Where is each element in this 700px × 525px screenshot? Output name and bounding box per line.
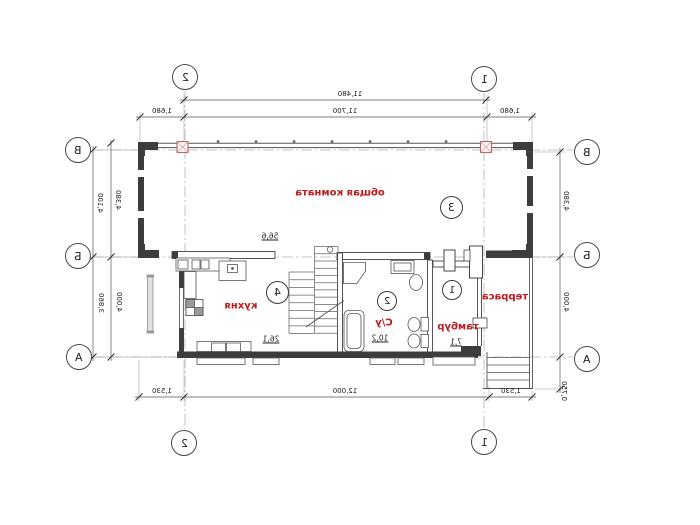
room-number-bathroom: 2 [377, 291, 397, 311]
terrace-outline [483, 258, 533, 389]
room-number-kitchen: 4 [266, 281, 289, 304]
room-label-terrace: терраса [482, 292, 528, 303]
dim-top-left: 1,680 [152, 107, 172, 115]
bidet-bowl [408, 334, 420, 348]
dim-top-right: 1,680 [500, 107, 520, 115]
dim-right-bottom: 0,750 [560, 381, 568, 401]
room-number-vestibule: 1 [442, 280, 462, 300]
dim-bottom-middle: 12,000 [333, 387, 358, 395]
room-area-living: 56,6 [262, 232, 279, 241]
dim-right-lower: 4,000 [562, 292, 570, 312]
axis-bubble-bottom-2: 2 [171, 430, 197, 456]
sink [410, 275, 423, 291]
dim-left-outer-upper: 4,100 [96, 193, 104, 213]
axis-bubble-right-b: Б [574, 242, 600, 268]
axis-bubble-top-2: 2 [172, 64, 198, 90]
bidet-tank [421, 335, 429, 348]
room-area-bathroom: 10,2 [372, 334, 389, 343]
toilet-tank [421, 318, 429, 332]
room-area-vestibule: 7,1 [450, 338, 462, 347]
dim-bottom-right: 1,530 [501, 387, 521, 395]
room-label-vestibule: тамбур [437, 322, 478, 333]
room-label-bathroom: С/у [375, 318, 393, 329]
axis-bubble-bottom-1: 1 [471, 429, 497, 455]
floor-plan: 2 1 2 1 В Б А В Б А 11,480 1,680 11,700 … [0, 0, 700, 525]
dim-top-overall: 11,480 [338, 90, 363, 98]
dim-left-outer-lower: 3,860 [97, 293, 105, 313]
axis-bubble-right-v: В [574, 139, 600, 165]
room-label-living: общая комната [295, 188, 385, 199]
toilet-bowl [408, 318, 420, 332]
axis-bubble-right-a: А [574, 346, 600, 372]
axis-bubble-left-a: А [66, 344, 92, 370]
dim-right-upper: 4,380 [562, 191, 570, 211]
shower-tray [344, 263, 366, 284]
staircase [289, 247, 344, 334]
dim-left-inner-upper: 4,380 [114, 190, 122, 210]
room-area-kitchen: 26,1 [263, 335, 280, 344]
dim-left-inner-lower: 4,000 [115, 292, 123, 312]
dim-bottom-left: 1,530 [152, 387, 172, 395]
axis-bubble-top-1: 1 [471, 66, 497, 92]
axis-bubble-left-v: В [65, 137, 91, 163]
room-number-living: 3 [440, 196, 463, 219]
dim-top-middle: 11,700 [333, 107, 358, 115]
axis-bubble-left-b: Б [65, 243, 91, 269]
room-label-kitchen: кухня [224, 301, 257, 312]
